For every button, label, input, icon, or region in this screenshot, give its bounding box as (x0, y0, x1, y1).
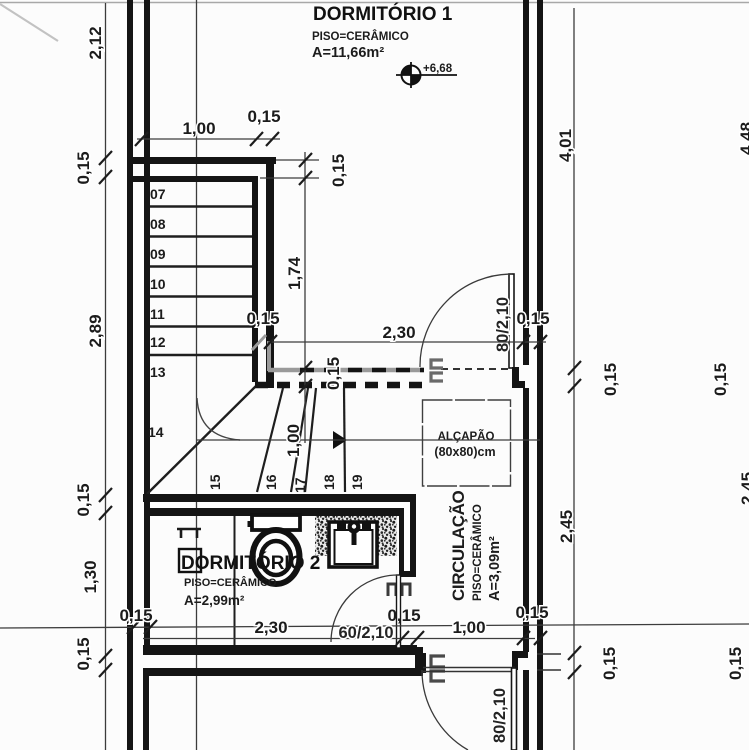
svg-text:09: 09 (150, 246, 166, 262)
svg-text:PISO=CERÂMICO: PISO=CERÂMICO (312, 30, 409, 43)
svg-text:0,15: 0,15 (387, 606, 420, 625)
svg-text:17: 17 (292, 477, 308, 493)
svg-text:PISO=CERÂMICO: PISO=CERÂMICO (184, 576, 277, 589)
svg-text:CIRCULAÇÃO: CIRCULAÇÃO (448, 491, 468, 601)
svg-text:60/2,10: 60/2,10 (338, 624, 393, 642)
svg-text:+6,68: +6,68 (423, 63, 453, 75)
svg-text:DORMITÓRIO 2: DORMITÓRIO 2 (181, 552, 320, 574)
svg-text:A=3,09m²: A=3,09m² (487, 536, 503, 601)
svg-text:2,12: 2,12 (86, 26, 105, 59)
svg-text:0,15: 0,15 (119, 606, 152, 625)
svg-text:16: 16 (263, 474, 279, 490)
svg-text:A=2,99m²: A=2,99m² (184, 593, 245, 608)
svg-text:0,15: 0,15 (74, 151, 93, 184)
svg-text:PISO=CERÂMICO: PISO=CERÂMICO (471, 504, 484, 601)
svg-text:07: 07 (150, 186, 166, 202)
svg-text:0,15: 0,15 (600, 647, 619, 680)
svg-text:13: 13 (150, 364, 166, 380)
svg-text:10: 10 (150, 276, 166, 292)
svg-text:1,30: 1,30 (81, 560, 100, 593)
svg-text:14: 14 (148, 424, 164, 440)
svg-text:2,30: 2,30 (254, 618, 287, 637)
svg-text:11: 11 (150, 306, 165, 322)
svg-text:(80x80)cm: (80x80)cm (434, 445, 495, 459)
svg-text:12: 12 (150, 334, 166, 350)
svg-text:2,45: 2,45 (557, 510, 576, 543)
svg-text:0,15: 0,15 (74, 483, 93, 516)
svg-text:0,15: 0,15 (324, 357, 343, 390)
svg-text:1,74: 1,74 (285, 256, 304, 290)
svg-text:1,00: 1,00 (452, 618, 485, 637)
svg-text:0,15: 0,15 (726, 647, 745, 680)
svg-text:0,15: 0,15 (74, 637, 93, 670)
svg-text:08: 08 (150, 216, 166, 232)
svg-text:15: 15 (207, 474, 223, 490)
svg-text:18: 18 (321, 474, 337, 490)
svg-text:2,89: 2,89 (86, 314, 105, 347)
svg-text:A=11,66m²: A=11,66m² (312, 45, 384, 61)
svg-text:4,48: 4,48 (737, 122, 749, 155)
svg-text:2,30: 2,30 (382, 323, 415, 342)
svg-text:2,45: 2,45 (738, 472, 749, 505)
svg-text:80/2,10: 80/2,10 (494, 297, 512, 352)
svg-text:0,15: 0,15 (601, 363, 620, 396)
svg-text:1,00: 1,00 (182, 119, 215, 138)
svg-text:0,15: 0,15 (516, 309, 549, 328)
svg-text:ALÇAPÃO: ALÇAPÃO (438, 430, 495, 443)
svg-text:80/2,10: 80/2,10 (491, 688, 509, 743)
svg-text:0,15: 0,15 (329, 154, 348, 187)
svg-text:4,01: 4,01 (556, 129, 575, 162)
svg-text:0,15: 0,15 (515, 603, 548, 622)
svg-text:0,15: 0,15 (246, 309, 279, 328)
svg-text:19: 19 (349, 474, 365, 490)
svg-text:0,15: 0,15 (247, 107, 280, 126)
svg-text:0,15: 0,15 (711, 363, 730, 396)
svg-text:DORMITÓRIO 1: DORMITÓRIO 1 (313, 3, 453, 25)
svg-text:1,00: 1,00 (284, 424, 303, 457)
